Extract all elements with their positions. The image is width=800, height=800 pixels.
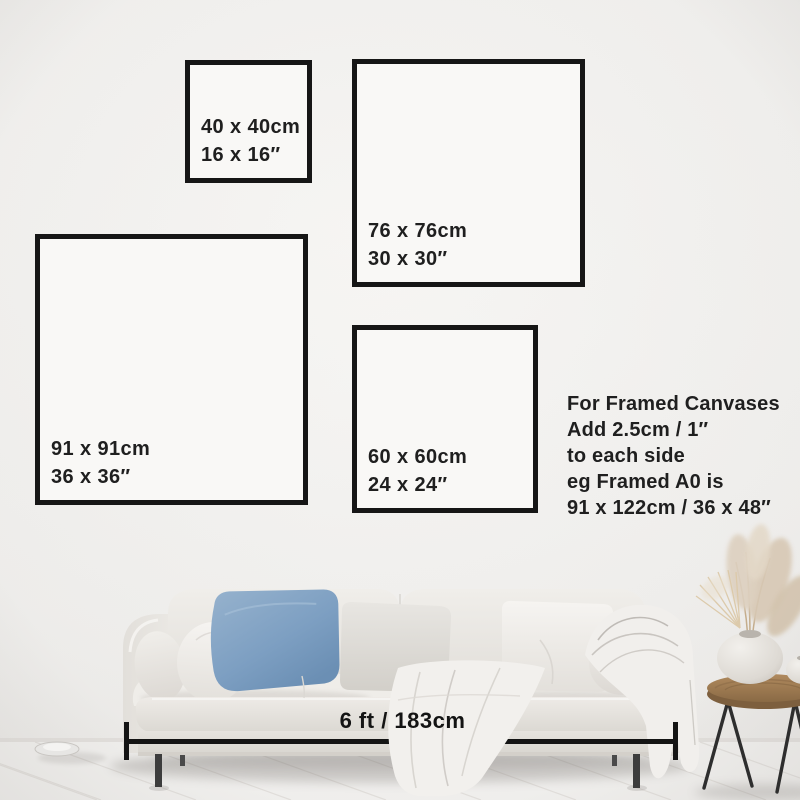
- size-label-cm: 91 x 91cm: [51, 435, 150, 463]
- note-line: For Framed Canvases: [567, 391, 797, 417]
- sofa-width-label: 6 ft / 183cm: [130, 706, 675, 736]
- size-square-91x91: 91 x 91cm 36 x 36″: [35, 234, 308, 505]
- size-square-60x60: 60 x 60cm 24 x 24″: [352, 325, 538, 513]
- size-label-inches: 24 x 24″: [368, 471, 467, 499]
- size-label-inches: 30 x 30″: [368, 245, 467, 273]
- size-label: 91 x 91cm 36 x 36″: [40, 435, 150, 500]
- size-label-cm: 60 x 60cm: [368, 443, 467, 471]
- note-line: 91 x 122cm / 36 x 48″: [567, 495, 797, 521]
- dimension-end-cap-left: [124, 722, 129, 760]
- blue-pillow: [208, 586, 342, 693]
- framed-canvas-note: For Framed Canvases Add 2.5cm / 1″ to ea…: [567, 391, 797, 521]
- size-label-inches: 36 x 36″: [51, 463, 150, 491]
- size-label-cm: 76 x 76cm: [368, 217, 467, 245]
- size-guide-infographic: 40 x 40cm 16 x 16″ 76 x 76cm 30 x 30″ 91…: [0, 0, 800, 800]
- size-label: 40 x 40cm 16 x 16″: [190, 113, 300, 178]
- note-line: eg Framed A0 is: [567, 469, 797, 495]
- size-label-cm: 40 x 40cm: [201, 113, 300, 141]
- size-label: 60 x 60cm 24 x 24″: [357, 443, 467, 508]
- note-line: Add 2.5cm / 1″: [567, 417, 797, 443]
- size-square-76x76: 76 x 76cm 30 x 30″: [352, 59, 585, 287]
- size-square-40x40: 40 x 40cm 16 x 16″: [185, 60, 312, 183]
- note-line: to each side: [567, 443, 797, 469]
- size-label: 76 x 76cm 30 x 30″: [357, 217, 467, 282]
- size-label-inches: 16 x 16″: [201, 141, 300, 169]
